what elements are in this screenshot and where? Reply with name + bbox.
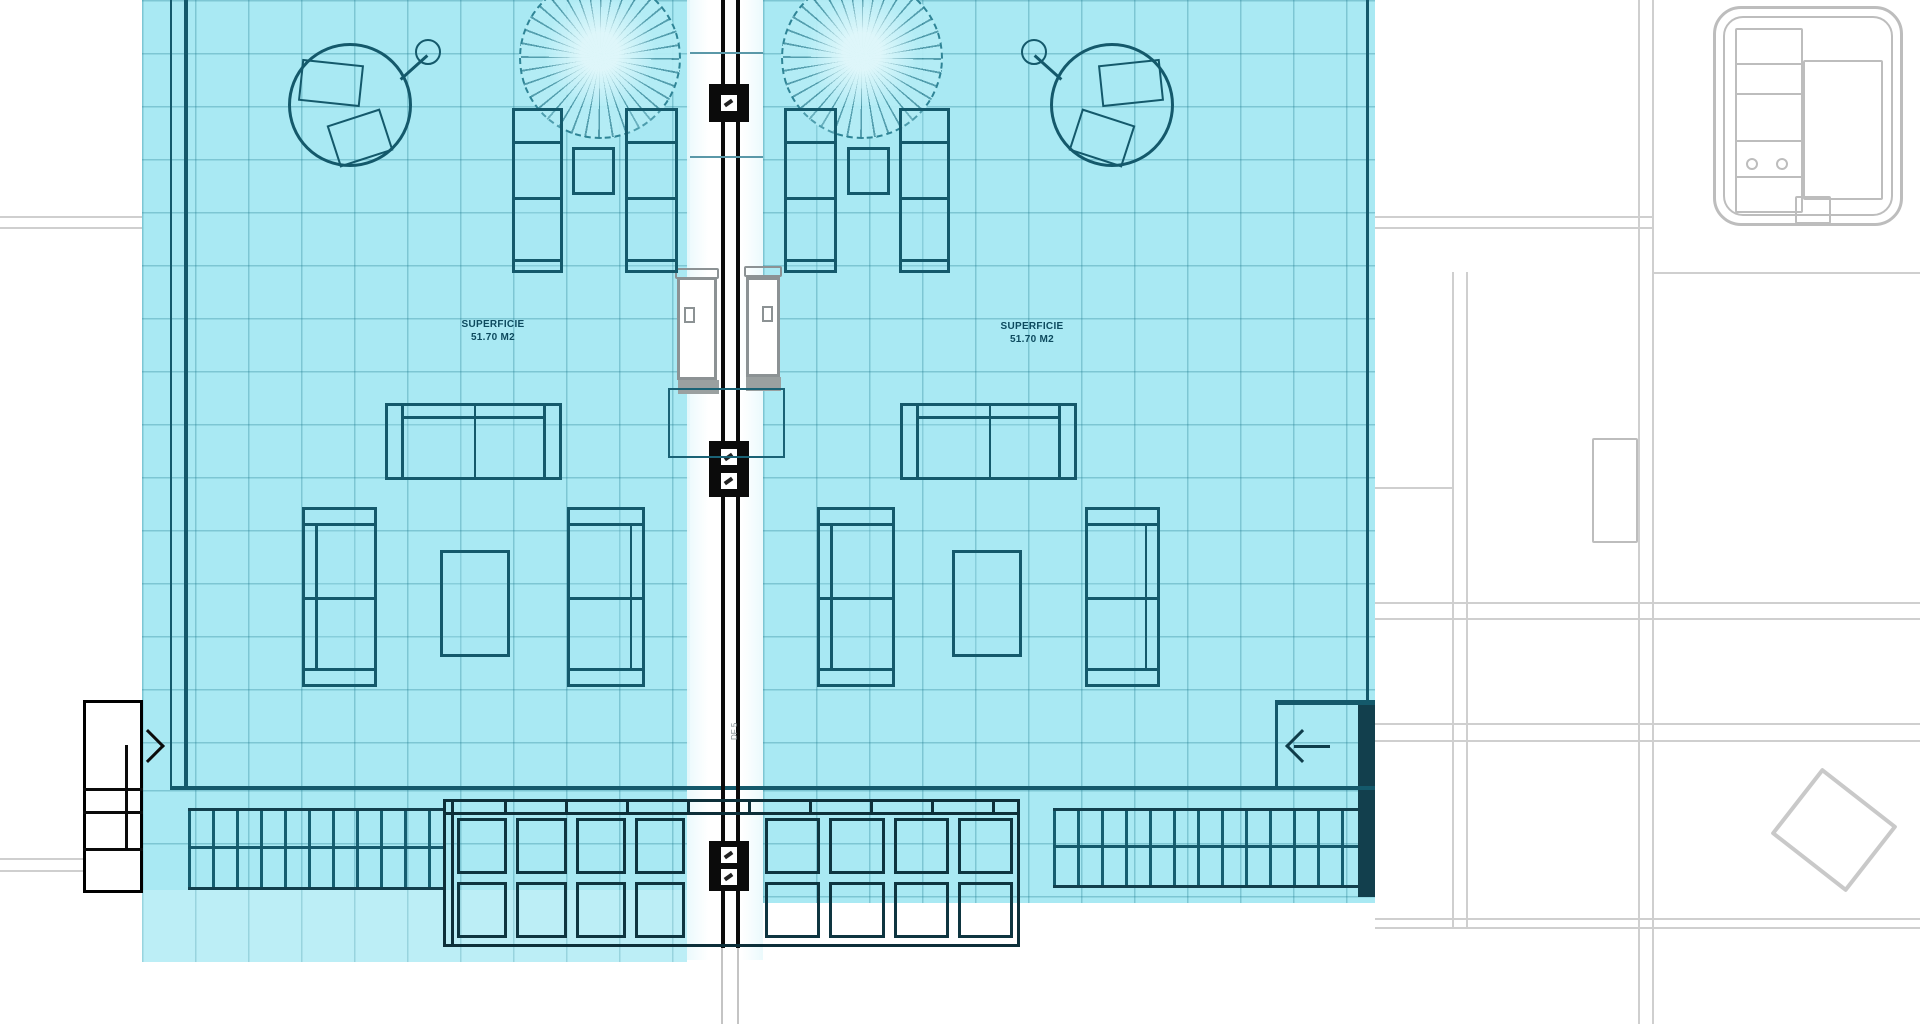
jacuzzi-jet: [1746, 158, 1758, 170]
jacuzzi-seat-divider: [1735, 93, 1803, 95]
sun-lounger-icon: [899, 108, 950, 273]
bg-line: [1375, 918, 1920, 920]
stair-line: [83, 848, 143, 851]
shower-head-icon: [415, 39, 441, 65]
pergola-cell: [635, 818, 685, 874]
bg-line: [1638, 0, 1640, 1024]
bg-line: [1652, 0, 1654, 1024]
terrace-bottom-wall: [170, 786, 1375, 790]
diamond-marker-icon: [1770, 767, 1897, 892]
gap-tick: [690, 156, 763, 158]
railing-right-rail: [1053, 845, 1358, 848]
sun-lounger-icon: [512, 108, 563, 273]
stair-line: [83, 788, 143, 791]
stair-line: [83, 811, 143, 814]
jacuzzi-step: [1795, 196, 1831, 224]
pergola-cell: [576, 882, 626, 938]
sofa-icon: [900, 403, 1077, 480]
bg-line: [0, 870, 83, 872]
pergola-cell: [765, 818, 820, 874]
bg-line: [1652, 272, 1920, 274]
terrace-right-step-wall: [1275, 700, 1278, 790]
bg-line: [1375, 618, 1920, 620]
floor-plan-canvas: SUPERFICIE 51.70 M2 SUPERFICIE 51.70 M2 …: [0, 0, 1920, 1024]
terrace-door-left-unit: [677, 277, 717, 380]
bg-line: [1375, 227, 1652, 229]
pergola-cell: [829, 882, 884, 938]
jacuzzi-basin: [1803, 60, 1883, 200]
terrace-left-wall: [170, 0, 172, 790]
party-wall-below: [721, 948, 723, 1024]
bg-line: [1375, 216, 1652, 218]
column-marker-icon: [709, 84, 749, 122]
pergola-cell: [958, 882, 1013, 938]
railing-left: [188, 808, 443, 890]
entry-arrow-stub: [1294, 745, 1330, 748]
bg-line: [1375, 927, 1920, 929]
pergola-cell: [894, 882, 949, 938]
area-label-right-unit: SUPERFICIE 51.70 M2: [972, 320, 1092, 346]
shower-tray: [298, 59, 364, 107]
pergola-cell: [516, 818, 566, 874]
bg-line: [1466, 272, 1468, 928]
jacuzzi-seat-divider: [1735, 63, 1803, 65]
bg-line: [0, 858, 83, 860]
terrace-left-wall: [184, 0, 188, 790]
armchair-icon: [567, 507, 645, 687]
door-handle-icon: [762, 306, 773, 322]
pergola-cell: [457, 818, 507, 874]
side-table-icon: [847, 147, 890, 195]
terrace-right-edge: [1366, 0, 1369, 700]
jacuzzi-seat-divider: [1735, 140, 1803, 142]
jacuzzi-seat-divider: [1735, 176, 1803, 178]
pergola-cell: [958, 818, 1013, 874]
gap-tick: [690, 52, 763, 54]
door-handle-icon: [684, 307, 695, 323]
pergola-cell: [457, 882, 507, 938]
jacuzzi-jet: [1776, 158, 1788, 170]
door-lintel: [744, 266, 782, 277]
shower-tray: [1098, 59, 1164, 107]
railing-right: [1053, 808, 1358, 888]
pergola-cells-right: [765, 818, 1013, 938]
terrace-door-right-unit: [746, 277, 780, 377]
pergola-cell: [635, 882, 685, 938]
area-label-left-unit: SUPERFICIE 51.70 M2: [433, 318, 553, 344]
bg-line: [1375, 723, 1920, 725]
bg-closet-outline: [1592, 438, 1638, 543]
pergola-cell: [765, 882, 820, 938]
armchair-icon: [817, 507, 895, 687]
bg-line: [1452, 272, 1454, 928]
coffee-table-icon: [952, 550, 1022, 657]
side-table-icon: [572, 147, 615, 195]
pergola-cells-left: [457, 818, 685, 938]
terrace-right-step-wall: [1275, 700, 1375, 705]
party-wall-below: [737, 948, 739, 1024]
pergola-cell: [516, 882, 566, 938]
pergola-left-double: [451, 799, 454, 947]
sun-lounger-icon: [784, 108, 837, 273]
pergola-cell: [829, 818, 884, 874]
bg-line: [1375, 740, 1920, 742]
wall-reference-label: DF 5: [730, 723, 739, 740]
stairs-icon: [83, 700, 143, 893]
railing-left-rail: [188, 846, 443, 849]
bg-line: [1375, 602, 1920, 604]
bg-line: [1375, 487, 1452, 489]
stair-line: [125, 745, 128, 848]
sofa-icon: [385, 403, 562, 480]
terrace-right-wall: [1358, 700, 1375, 897]
pergola-cell: [894, 818, 949, 874]
armchair-icon: [302, 507, 377, 687]
sun-lounger-icon: [625, 108, 678, 273]
coffee-table-icon: [440, 550, 510, 657]
pergola-top-rail: [446, 802, 1017, 815]
shower-head-icon: [1021, 39, 1047, 65]
armchair-icon: [1085, 507, 1160, 687]
pergola-cell: [576, 818, 626, 874]
jacuzzi-seat-column: [1735, 28, 1803, 213]
planter-box: [668, 388, 785, 458]
